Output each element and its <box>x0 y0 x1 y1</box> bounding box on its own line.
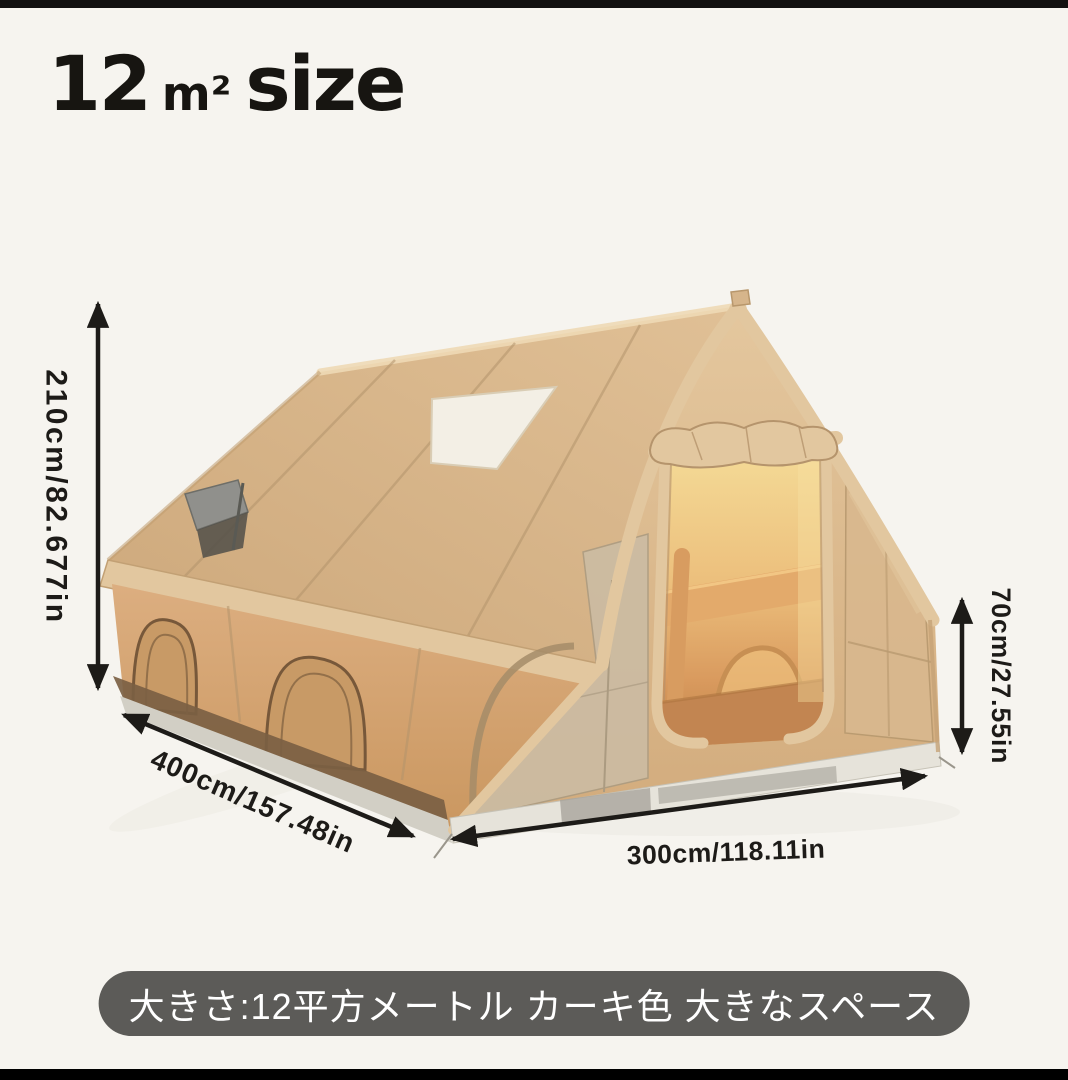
rolled-door-flap <box>650 421 837 468</box>
tent-illustration: 210cm/82.677in 400cm/157.48in 300cm/118.… <box>0 0 1068 1080</box>
dim-wall-height-label: 70cm/27.55in <box>986 587 1016 764</box>
product-size-diagram: 12m²size <box>0 0 1068 1080</box>
dim-height-label: 210cm/82.677in <box>40 369 73 624</box>
apex-tab <box>731 290 750 306</box>
caption-text: 大きさ:12平方メートル カーキ色 大きなスペース <box>129 978 940 1030</box>
dim-width-label: 300cm/118.11in <box>626 834 825 871</box>
bottom-letterbox-bar <box>0 1069 1068 1080</box>
caption-pill: 大きさ:12平方メートル カーキ色 大きなスペース <box>99 971 970 1036</box>
